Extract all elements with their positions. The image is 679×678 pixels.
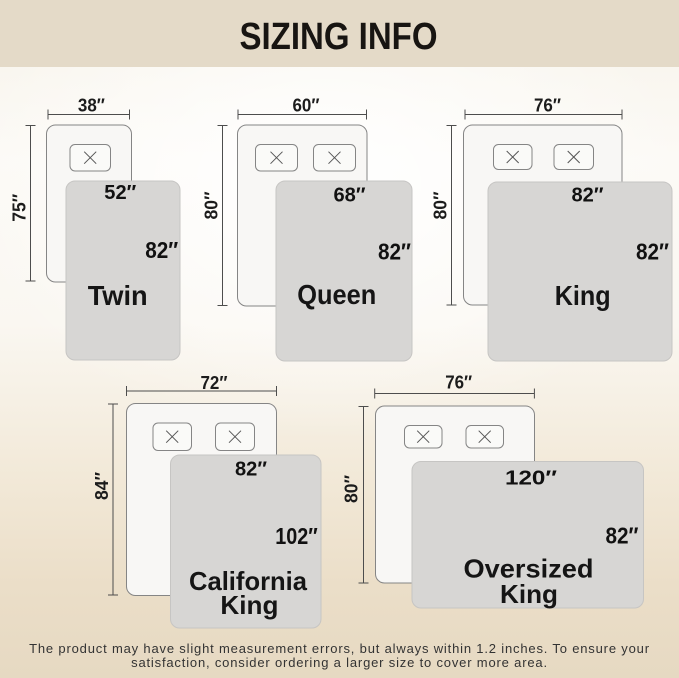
svg-text:Twin: Twin xyxy=(88,280,148,311)
svg-text:76″: 76″ xyxy=(445,373,472,393)
svg-text:Queen: Queen xyxy=(297,279,376,310)
svg-text:76″: 76″ xyxy=(534,96,561,116)
svg-text:120″: 120″ xyxy=(505,467,557,490)
svg-text:82″: 82″ xyxy=(145,237,178,263)
svg-text:SIZING INFO: SIZING INFO xyxy=(240,16,438,58)
svg-text:82″: 82″ xyxy=(606,523,639,549)
svg-text:King: King xyxy=(500,579,558,609)
svg-text:80″: 80″ xyxy=(342,475,362,503)
svg-text:75″: 75″ xyxy=(10,193,30,221)
svg-text:King: King xyxy=(555,280,611,311)
svg-text:82″: 82″ xyxy=(235,458,267,481)
svg-text:82″: 82″ xyxy=(378,239,411,265)
svg-text:82″: 82″ xyxy=(572,184,604,207)
svg-text:38″: 38″ xyxy=(78,96,105,116)
svg-text:82″: 82″ xyxy=(636,239,669,265)
svg-text:84″: 84″ xyxy=(92,472,112,500)
svg-text:60″: 60″ xyxy=(293,96,320,116)
svg-text:King: King xyxy=(220,590,278,620)
svg-text:80″: 80″ xyxy=(202,191,222,219)
svg-text:72″: 72″ xyxy=(201,373,228,393)
svg-text:68″: 68″ xyxy=(334,184,366,207)
svg-text:80″: 80″ xyxy=(431,191,451,219)
svg-text:102″: 102″ xyxy=(275,523,318,549)
svg-text:52″: 52″ xyxy=(104,181,136,204)
